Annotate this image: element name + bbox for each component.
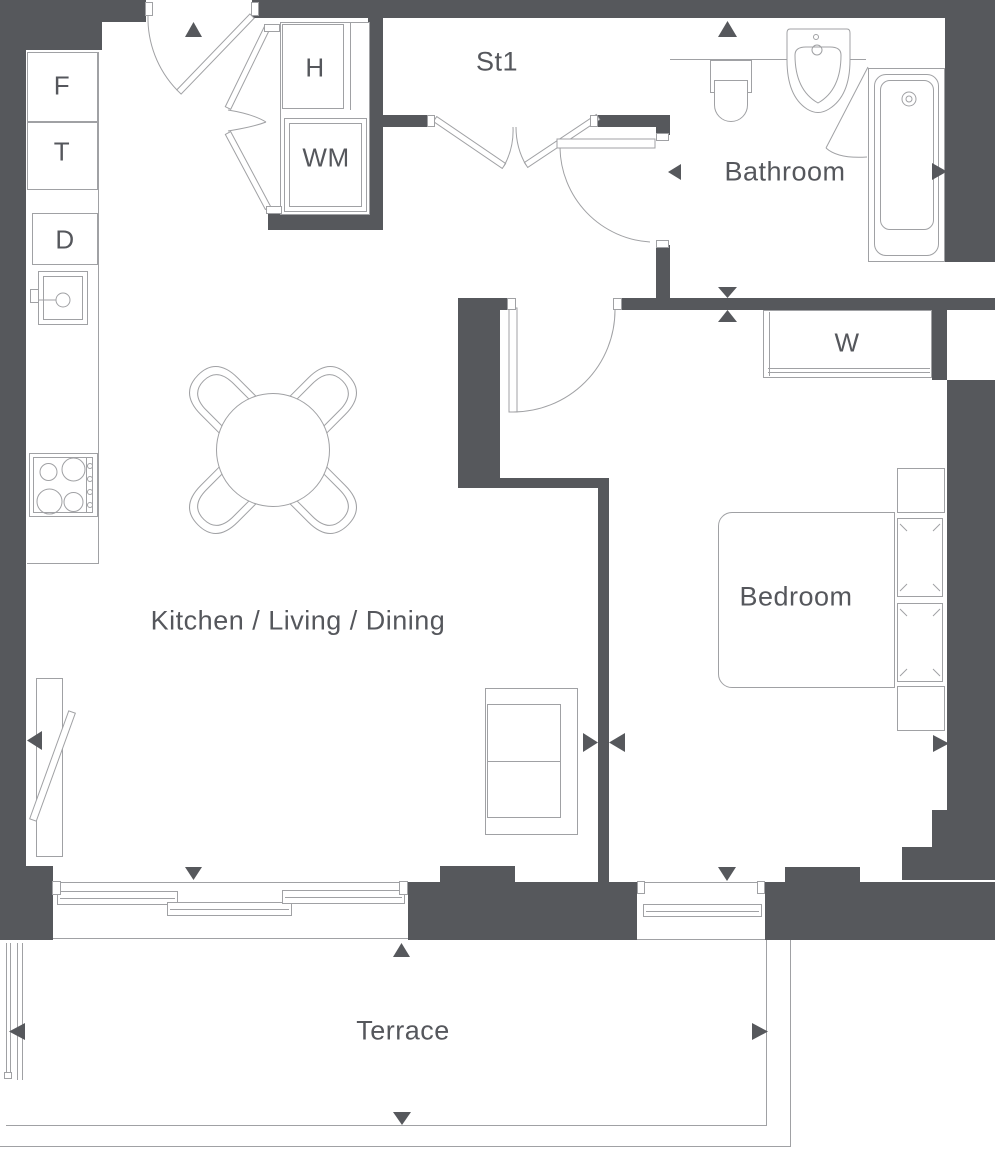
washing-machine-label: WM <box>302 143 349 174</box>
bathroom-label: Bathroom <box>724 157 845 188</box>
terrace-label: Terrace <box>356 1016 450 1047</box>
bedroom-window-panel <box>643 904 762 917</box>
sliding-panel-1 <box>57 891 178 905</box>
bathtub-basin <box>880 80 934 230</box>
wall-top-left <box>0 0 146 22</box>
counter-bottom <box>27 563 99 564</box>
dining-table <box>217 394 330 507</box>
terrace-rail-left-2 <box>10 943 11 1075</box>
kitchen-living-dining-label: Kitchen / Living / Dining <box>151 606 446 637</box>
bathroom-arrow-up-icon <box>718 21 737 37</box>
hob-inner <box>33 457 93 513</box>
bathroom-door-arc <box>560 148 650 242</box>
counter-edge <box>98 52 99 563</box>
basin-tap <box>812 45 822 55</box>
wall-left <box>0 50 26 866</box>
cupboard-label: H <box>305 53 324 84</box>
wall-store-bottom-left <box>383 115 428 127</box>
bedroom-door-leaf <box>509 308 517 412</box>
bathroom-door-frame-bottom <box>656 240 669 248</box>
wall-wardrobe-right <box>932 310 947 380</box>
terrace-rail-left-1 <box>6 943 7 1075</box>
dining-chair <box>180 357 264 441</box>
tv-unit <box>36 678 63 857</box>
terrace-edge-bottom-1 <box>6 1125 766 1126</box>
sliding-frame-bottom <box>53 938 408 939</box>
terrace-rail-left-4 <box>22 943 23 1080</box>
hob-control-divider <box>86 457 87 513</box>
store-door-leaf-right <box>524 114 599 167</box>
bedroom-window-frame-right <box>757 881 765 894</box>
basin-tap-hole <box>814 35 819 40</box>
wall-bathroom-stub-bottom <box>656 245 670 298</box>
bedroom-label: Bedroom <box>739 582 852 613</box>
terrace-rail-right-1 <box>766 940 767 1126</box>
wardrobe-left-line <box>769 312 770 376</box>
sink-inner <box>43 276 83 320</box>
store-label: St1 <box>476 47 518 78</box>
sofa-divider <box>487 761 561 762</box>
bathroom-door-leaf <box>557 139 655 148</box>
bedroom-window-frame-bottom-line <box>637 939 765 940</box>
dining-chair <box>180 459 264 543</box>
terrace-rail-end-cap <box>4 1072 12 1079</box>
closet-bifold-leaf-top <box>225 27 269 110</box>
closet-bifold-leaf-bottom <box>225 132 270 210</box>
store-door-leaf-left <box>433 117 505 169</box>
bathroom-door-frame-top <box>656 133 669 141</box>
dining-chair <box>282 459 366 543</box>
terrace-arrow-up-icon <box>393 943 410 957</box>
closet-bifold-swing-top <box>228 110 266 122</box>
wall-store-bottom-right <box>598 115 656 127</box>
wall-living-bedroom <box>598 488 609 883</box>
terrace-rail-right-2 <box>790 940 791 1147</box>
store-door-frame-right <box>590 115 598 127</box>
wall-top-left-corner <box>0 22 102 50</box>
sink-tap-fitting <box>30 289 39 303</box>
bedroom-door-arc <box>513 310 615 412</box>
entry-arrow-up-icon <box>185 22 202 37</box>
wall-left-bottom-corner <box>0 866 53 940</box>
wall-hall-thick <box>458 310 500 488</box>
store-door-swing-left <box>504 127 513 166</box>
wall-bottom-right <box>765 882 995 940</box>
wall-bottom-mid-tab <box>440 866 515 882</box>
bedroom-window-frame-left <box>637 881 645 894</box>
basin-bowl <box>795 47 841 103</box>
wall-step-2 <box>902 847 995 880</box>
wall-bathroom-stub-top <box>656 115 670 135</box>
bedroom-window-frame-top-line <box>637 882 765 883</box>
wall-bottom-mid <box>408 882 637 940</box>
wall-bedroom-band <box>622 298 995 310</box>
bedroom-door-frame-right <box>613 298 622 310</box>
closet-door-frame-bottom <box>266 206 282 214</box>
terrace-arrow-down-icon <box>393 1112 411 1125</box>
entry-door-leaf <box>177 14 254 94</box>
wardrobe-rail-a <box>768 368 930 369</box>
wall-step-1 <box>932 810 995 847</box>
partition-arrow-right-icon <box>583 733 598 752</box>
closet-side-line <box>350 23 351 110</box>
sliding-panel-2 <box>167 902 292 916</box>
sliding-door-frame-left <box>52 881 61 895</box>
wall-step-3 <box>785 867 860 883</box>
dining-chair <box>282 357 366 441</box>
wall-top <box>252 0 945 18</box>
wardrobe-rail-b <box>768 372 930 373</box>
wall-closet-side <box>368 18 383 230</box>
pillow-top <box>897 518 943 597</box>
bathroom-arrow-left-icon <box>668 164 681 180</box>
wardrobe-label: W <box>834 328 859 359</box>
living-bottom-arrow-down-icon <box>185 867 202 880</box>
bedroom-wall-arrow-up-icon <box>718 310 737 322</box>
wall-right-top <box>945 0 995 262</box>
store-door-swing-right <box>516 127 526 165</box>
bathroom-wall-arrow-down-icon <box>718 287 737 298</box>
dishwasher-label: D <box>55 225 74 256</box>
wall-right-bedroom <box>947 380 995 810</box>
closet-bifold-swing-bottom <box>228 122 266 131</box>
partition-arrow-left-icon <box>609 733 625 752</box>
bedroom-door-frame-left <box>507 298 516 310</box>
closet-door-frame-top <box>264 24 280 32</box>
wall-hall-band-left <box>458 298 508 310</box>
store-door-frame-left <box>427 115 435 127</box>
nightstand-top <box>897 468 945 513</box>
toilet-bowl <box>714 80 748 122</box>
floor-plan: F T D H WM St1 Bathroom W Bedroom Kitche… <box>0 0 995 1150</box>
basin <box>787 29 850 113</box>
tall-unit-label: T <box>54 137 70 168</box>
entry-door-frame-left <box>145 2 153 16</box>
bathroom-shelf-line <box>670 59 866 60</box>
sliding-panel-3 <box>282 890 405 904</box>
bedroom-bottom-arrow-down-icon <box>718 867 736 881</box>
pillow-bottom <box>897 603 943 682</box>
terrace-edge-bottom-2 <box>0 1146 790 1147</box>
sliding-frame-top <box>53 882 408 883</box>
nightstand-bottom <box>897 686 945 731</box>
wall-step-connector <box>495 478 609 488</box>
terrace-rail-left-3 <box>17 943 18 1080</box>
sliding-door-frame-right <box>399 881 408 895</box>
shower-screen <box>826 67 868 148</box>
entry-door-frame-right <box>251 2 259 16</box>
fridge-label: F <box>54 71 70 102</box>
entry-door-arc <box>148 15 177 90</box>
